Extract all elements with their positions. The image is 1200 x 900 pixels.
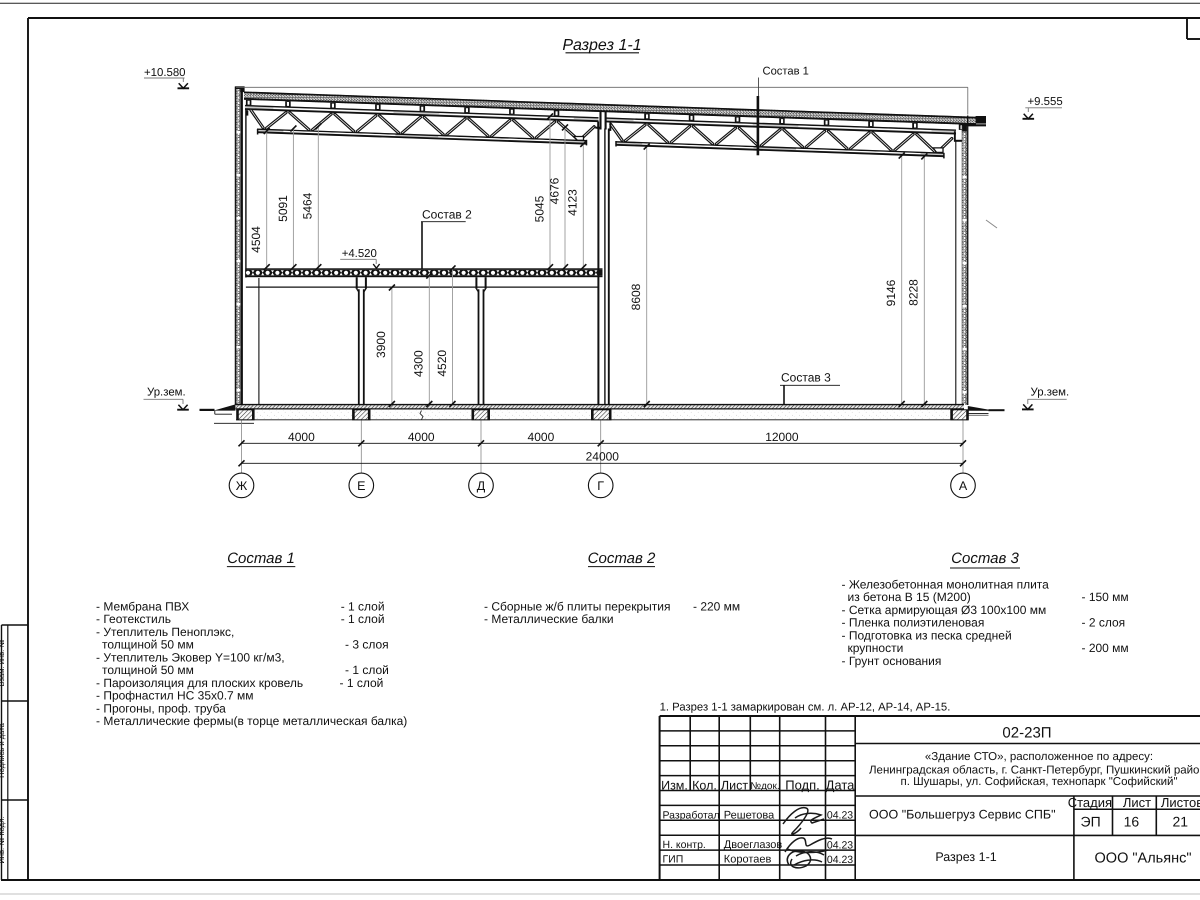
svg-text:04.23: 04.23 [827,854,853,866]
svg-text:3900: 3900 [374,331,388,358]
svg-text:Подпись и дата: Подпись и дата [0,722,6,777]
svg-text:- Металлические балки: - Металлические балки [484,612,614,626]
svg-text:Ж: Ж [236,479,248,493]
svg-text:ЭП: ЭП [1081,814,1101,830]
svg-text:Состав 2: Состав 2 [588,550,656,567]
svg-text:Ленинградская область, г. Санк: Ленинградская область, г. Санкт-Петербур… [869,765,1200,777]
svg-text:п. Шушары, ул. Софийская, техн: п. Шушары, ул. Софийская, технопарк "Соф… [900,776,1177,788]
svg-text:Подп.: Подп. [785,778,820,793]
svg-text:Е: Е [357,479,365,493]
svg-text:Кол.: Кол. [692,779,717,793]
svg-text:5091: 5091 [276,195,290,222]
svg-text:Коротаев: Коротаев [724,853,772,865]
svg-text:8608: 8608 [629,283,643,310]
svg-text:ООО "Альянс": ООО "Альянс" [1095,850,1192,866]
svg-text:- 2 слоя: - 2 слоя [1082,616,1126,630]
svg-text:+9.555: +9.555 [1028,96,1063,108]
svg-text:8228: 8228 [907,279,921,306]
svg-text:Состав 2: Состав 2 [422,208,472,222]
svg-text:9146: 9146 [884,279,898,306]
svg-text:Состав 1: Состав 1 [763,66,809,78]
svg-text:Решетова: Решетова [724,809,775,821]
svg-text:ООО "Большегруз Сервис СПБ": ООО "Большегруз Сервис СПБ" [869,808,1056,822]
svg-text:04.23: 04.23 [827,839,853,851]
svg-text:Ур.зем.: Ур.зем. [147,387,186,399]
svg-text:Разработал: Разработал [663,809,720,821]
svg-text:+10.580: +10.580 [144,67,186,79]
svg-text:Дата: Дата [826,778,856,793]
svg-text:12000: 12000 [765,430,799,444]
svg-text:- Грунт основания: - Грунт основания [842,654,942,668]
svg-text:5464: 5464 [301,192,315,219]
svg-text:4000: 4000 [408,430,435,444]
svg-text:- 150 мм: - 150 мм [1082,590,1129,604]
svg-text:Н. контр.: Н. контр. [663,839,706,851]
svg-text:Двоеглазов: Двоеглазов [724,839,783,851]
svg-text:4000: 4000 [528,430,555,444]
svg-text:Ур.зем.: Ур.зем. [1031,387,1070,399]
svg-text:4123: 4123 [566,189,580,216]
svg-text:Листов: Листов [1161,795,1200,810]
svg-text:Состав 3: Состав 3 [781,371,831,385]
svg-text:Инв. № подл.: Инв. № подл. [0,816,6,863]
svg-text:- 200 мм: - 200 мм [1082,641,1129,655]
svg-text:Изм.: Изм. [661,779,688,793]
svg-text:4000: 4000 [288,430,315,444]
svg-text:Д: Д [477,479,486,493]
svg-text:4504: 4504 [249,226,263,253]
svg-text:- 3 слоя: - 3 слоя [345,638,389,652]
svg-text:«Здание СТО», расположенное по: «Здание СТО», расположенное по адресу: [925,751,1153,763]
svg-text:Лист: Лист [1123,795,1151,810]
svg-text:21: 21 [1173,814,1189,830]
svg-text:- 220 мм: - 220 мм [693,599,740,613]
svg-text:- 1 слой: - 1 слой [340,676,384,690]
svg-text:Состав 3: Состав 3 [951,550,1019,567]
svg-text:16: 16 [1124,814,1140,830]
svg-text:ГИП: ГИП [663,853,684,865]
svg-text:- Металлические фермы(в торце: - Металлические фермы(в торце металличес… [96,714,407,728]
svg-text:02-23П: 02-23П [1002,725,1051,742]
svg-text:№док.: №док. [750,781,779,792]
svg-text:Разрез 1-1: Разрез 1-1 [562,37,641,54]
svg-text:4300: 4300 [412,350,426,377]
svg-text:Разрез 1-1: Разрез 1-1 [935,850,996,864]
svg-text:+4.520: +4.520 [342,248,377,260]
svg-text:- 1 слой: - 1 слой [341,612,385,626]
svg-text:А: А [959,479,968,493]
svg-text:04.23: 04.23 [827,810,853,822]
svg-text:Г: Г [597,479,604,493]
svg-text:Лист: Лист [721,779,748,793]
svg-text:5045: 5045 [532,195,546,222]
svg-text:4676: 4676 [547,177,561,204]
svg-text:Взам. инв. №: Взам. инв. № [0,639,6,686]
svg-text:4520: 4520 [435,350,449,377]
svg-text:1. Разрез 1-1 замаркирован см.: 1. Разрез 1-1 замаркирован см. л. АР-12,… [660,702,951,714]
svg-text:24000: 24000 [586,449,620,463]
svg-text:Состав 1: Состав 1 [227,550,295,567]
svg-text:Стадия: Стадия [1068,795,1112,810]
